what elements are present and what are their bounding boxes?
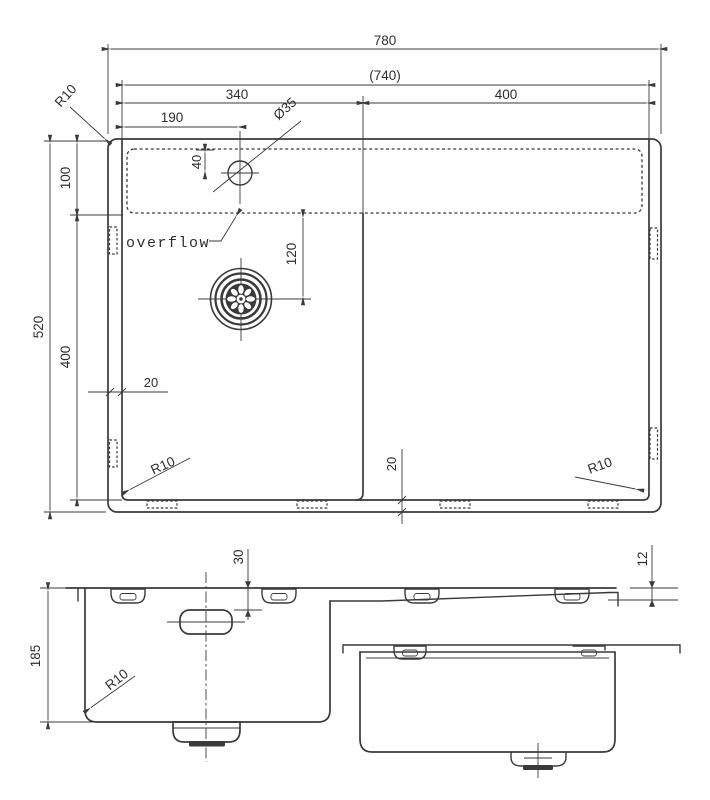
radius-label-bottom-right: R10 — [586, 454, 614, 477]
dim-rim-left: 20 — [144, 375, 158, 390]
radius-leader-bottom-right — [575, 477, 636, 489]
plan-drainboard-dashed-outline — [127, 149, 642, 213]
side-dimension-lines — [48, 545, 678, 721]
dim-bowl-height: 185 — [28, 645, 43, 668]
dim-overall-width: 780 — [374, 33, 397, 48]
side-right-drain-fitting — [511, 743, 566, 778]
plan-dimension-lines — [50, 49, 659, 524]
dim-overall-depth: 520 — [31, 316, 46, 339]
radius-leader-top-left — [70, 107, 105, 139]
side-body-outline — [40, 588, 618, 722]
dim-right-bowl-width: 400 — [495, 87, 518, 102]
dim-ledge-depth: 100 — [58, 167, 73, 190]
plan-view: 780 (740) 340 400 190 Ø35 40 100 520 400… — [31, 33, 661, 524]
dim-bowl-depth: 400 — [58, 346, 73, 369]
dim-left-bowl-width: 340 — [226, 87, 249, 102]
plan-outer-rim — [108, 139, 661, 512]
radius-label-top-left: R10 — [52, 81, 80, 109]
plan-faucet-hole — [213, 121, 301, 204]
dim-faucet-offset: 190 — [161, 110, 184, 125]
overflow-leader — [209, 217, 236, 242]
dim-faucet-from-edge: 40 — [189, 155, 204, 169]
side-right-edge-lip — [610, 593, 618, 607]
dim-drain-offset: 120 — [284, 243, 299, 266]
overflow-label: overflow — [126, 235, 210, 252]
plan-bowl-outline — [122, 140, 649, 500]
dim-edge-thickness: 12 — [635, 551, 650, 566]
side-faucet-hole-section — [167, 572, 245, 762]
dim-rim-bottom: 20 — [384, 457, 399, 471]
plan-leaders — [70, 107, 636, 490]
faucet-diameter-leader — [213, 121, 301, 192]
side-right-bowl — [343, 645, 680, 778]
dim-faucet-diameter: Ø35 — [270, 95, 299, 123]
side-left-bowl — [85, 589, 330, 723]
plan-bowl-divider — [357, 213, 364, 500]
side-left-drain-fitting — [173, 722, 240, 747]
plan-extension-lines — [44, 44, 661, 512]
dim-faucet-hole-depth: 30 — [231, 549, 246, 564]
plan-drain — [198, 258, 311, 341]
side-radius-label: R10 — [102, 666, 131, 693]
drawing-canvas: 780 (740) 340 400 190 Ø35 40 100 520 400… — [0, 0, 710, 800]
radius-label-bottom-left: R10 — [148, 454, 177, 478]
side-view: 185 30 12 R10 — [28, 545, 680, 778]
technical-drawing-sink: 780 (740) 340 400 190 Ø35 40 100 520 400… — [0, 0, 710, 800]
dim-inner-width: (740) — [369, 68, 401, 83]
